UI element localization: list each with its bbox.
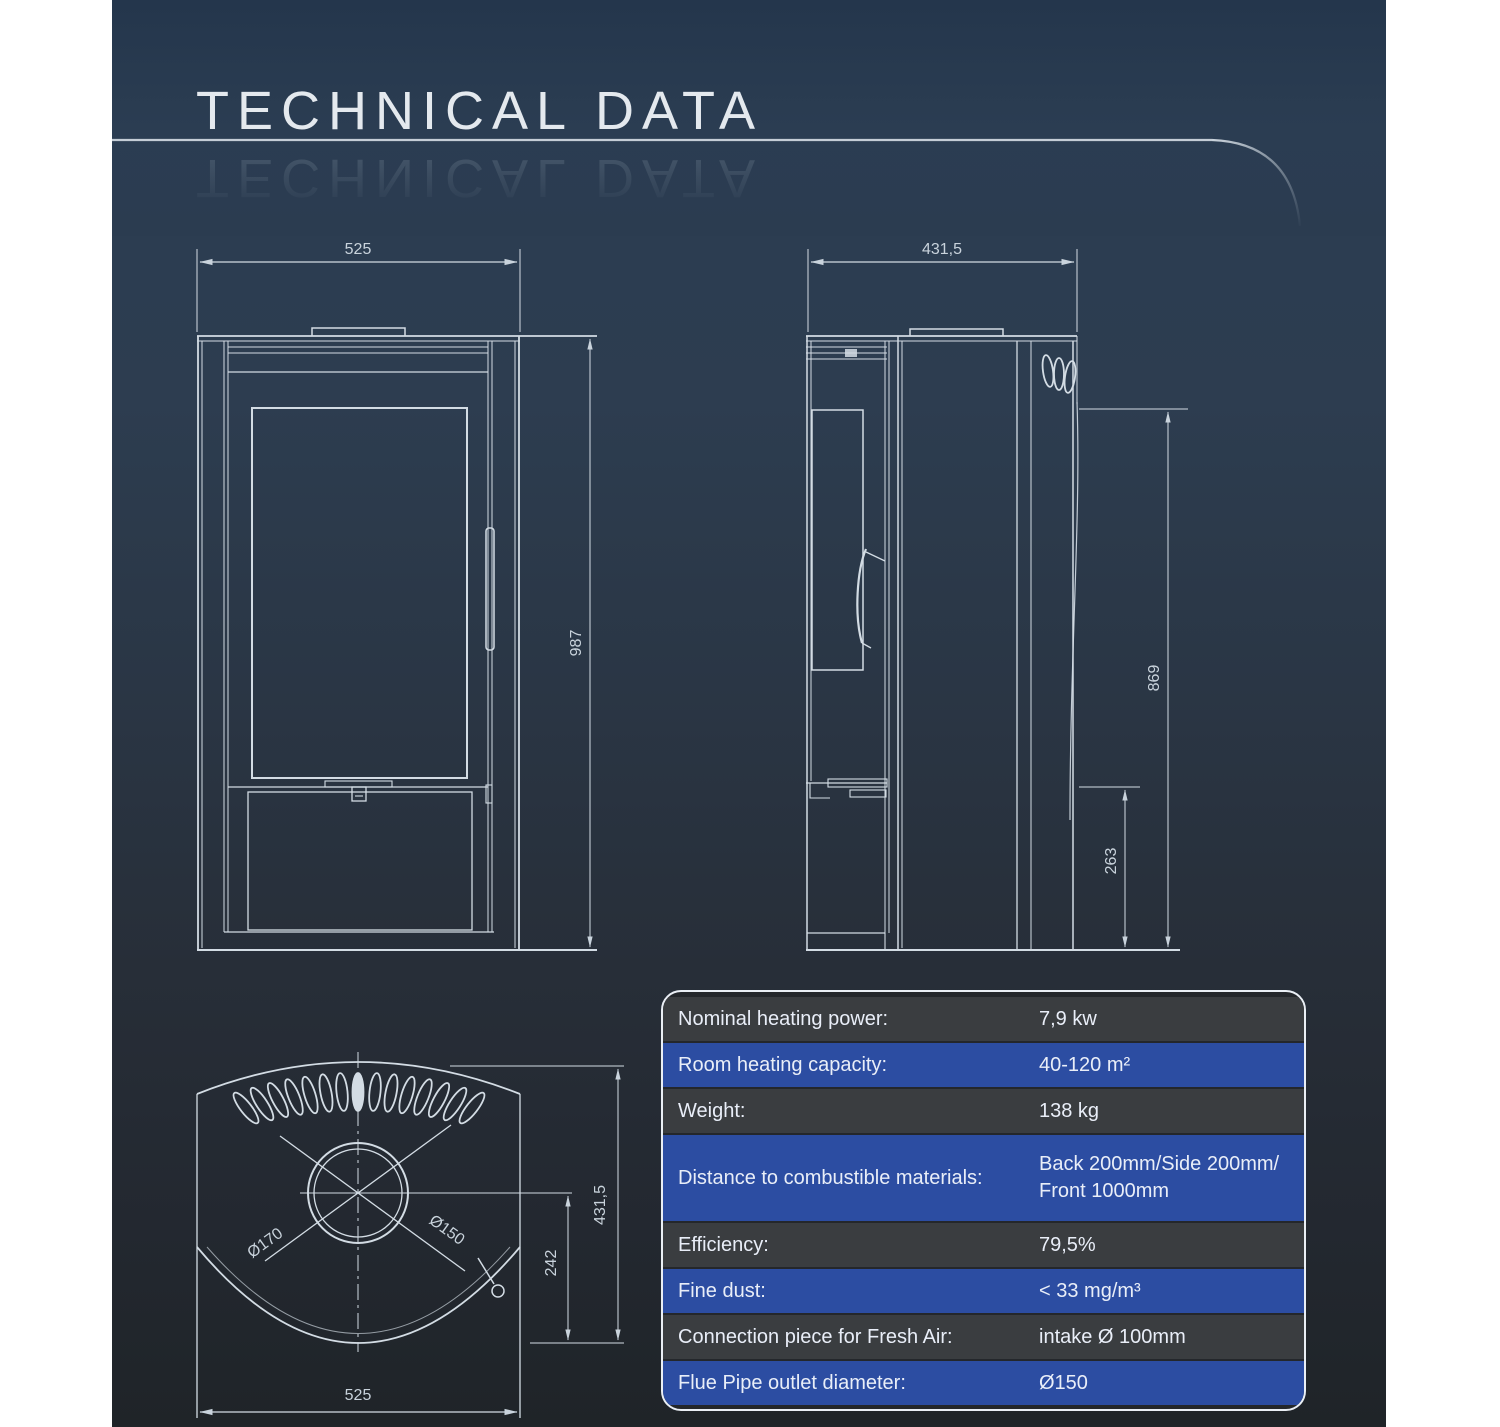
spec-value: 7,9 kw xyxy=(1039,1006,1304,1033)
vent-slot xyxy=(317,1073,335,1112)
spec-value: intake Ø 100mm xyxy=(1039,1324,1304,1351)
spec-label: Efficiency: xyxy=(663,1234,1039,1257)
spec-table: Nominal heating power: 7,9 kw Room heati… xyxy=(661,990,1306,1411)
spec-label: Connection piece for Fresh Air: xyxy=(663,1326,1039,1349)
spec-row-flue-pipe-diameter: Flue Pipe outlet diameter: Ø150 xyxy=(663,1361,1304,1405)
front-height-dimension: 987 xyxy=(568,630,585,657)
vent-slot xyxy=(440,1085,470,1123)
spec-value: 40-120 m² xyxy=(1039,1052,1304,1079)
title-underline xyxy=(112,140,1300,226)
side-vent-slot xyxy=(1041,354,1055,387)
side-vent-slot xyxy=(1063,360,1077,393)
spec-row-efficiency: Efficiency: 79,5% xyxy=(663,1223,1304,1267)
vent-slot xyxy=(368,1073,383,1112)
datasheet-page: TECHNICAL DATA TECHNICAL DATA xyxy=(0,0,1500,1427)
front-view-drawing: 525 987 xyxy=(197,241,597,950)
spec-label: Room heating capacity: xyxy=(663,1054,1039,1077)
right-page-margin xyxy=(1386,0,1500,1427)
spec-value: Ø150 xyxy=(1039,1370,1304,1397)
spec-value-line2: Front 1000mm xyxy=(1039,1178,1304,1205)
side-plinth-dimension: 263 xyxy=(1103,848,1120,875)
front-door-handle xyxy=(486,528,494,650)
spec-label: Fine dust: xyxy=(663,1280,1039,1303)
collar-outer-diameter-label: Ø170 xyxy=(245,1225,287,1262)
side-view-drawing: 431,5 869 263 xyxy=(806,241,1188,950)
front-width-dimension: 525 xyxy=(345,241,372,258)
spec-value: 138 kg xyxy=(1039,1098,1304,1125)
top-depth-dimension: 431,5 xyxy=(592,1185,609,1225)
side-vent-slot xyxy=(1054,358,1064,390)
spec-label: Distance to combustible materials: xyxy=(663,1167,1039,1190)
scraper-key xyxy=(492,1285,504,1297)
vent-slot xyxy=(335,1073,350,1112)
front-pedestal xyxy=(248,792,472,930)
spec-row-distance-to-combustibles: Distance to combustible materials: Back … xyxy=(663,1135,1304,1221)
spec-row-nominal-heating-power: Nominal heating power: 7,9 kw xyxy=(663,997,1304,1041)
vent-slot xyxy=(247,1085,277,1123)
vent-slot xyxy=(456,1090,488,1127)
spec-value: Back 200mm/Side 200mm/ Front 1000mm xyxy=(1039,1151,1304,1205)
top-vent-slots xyxy=(230,1073,488,1127)
spec-label: Weight: xyxy=(663,1100,1039,1123)
front-glass-window xyxy=(252,408,467,778)
spec-value-line1: Back 200mm/Side 200mm/ xyxy=(1039,1151,1304,1178)
left-page-margin xyxy=(0,0,112,1427)
side-glass-window xyxy=(812,410,863,670)
vent-slot xyxy=(264,1081,292,1120)
spec-row-room-heating-capacity: Room heating capacity: 40-120 m² xyxy=(663,1043,1304,1087)
spec-label: Flue Pipe outlet diameter: xyxy=(663,1372,1039,1395)
top-width-dimension: 525 xyxy=(345,1387,372,1404)
side-height-dimension: 869 xyxy=(1146,665,1163,692)
spec-row-fresh-air-connection: Connection piece for Fresh Air: intake Ø… xyxy=(663,1315,1304,1359)
vent-slot xyxy=(425,1081,453,1120)
top-flue-offset-dimension: 242 xyxy=(543,1250,560,1277)
top-view-drawing: 431,5 242 Ø170 Ø150 525 xyxy=(197,1052,624,1418)
spec-label: Nominal heating power: xyxy=(663,1008,1039,1031)
collar-inner-diameter-label: Ø150 xyxy=(426,1212,468,1249)
spec-row-fine-dust: Fine dust: < 33 mg/m³ xyxy=(663,1269,1304,1313)
spec-value: 79,5% xyxy=(1039,1232,1304,1259)
spec-value: < 33 mg/m³ xyxy=(1039,1278,1304,1305)
side-door-handle xyxy=(857,549,866,643)
spec-row-weight: Weight: 138 kg xyxy=(663,1089,1304,1133)
side-depth-dimension: 431,5 xyxy=(922,241,962,258)
vent-slot xyxy=(382,1073,400,1112)
